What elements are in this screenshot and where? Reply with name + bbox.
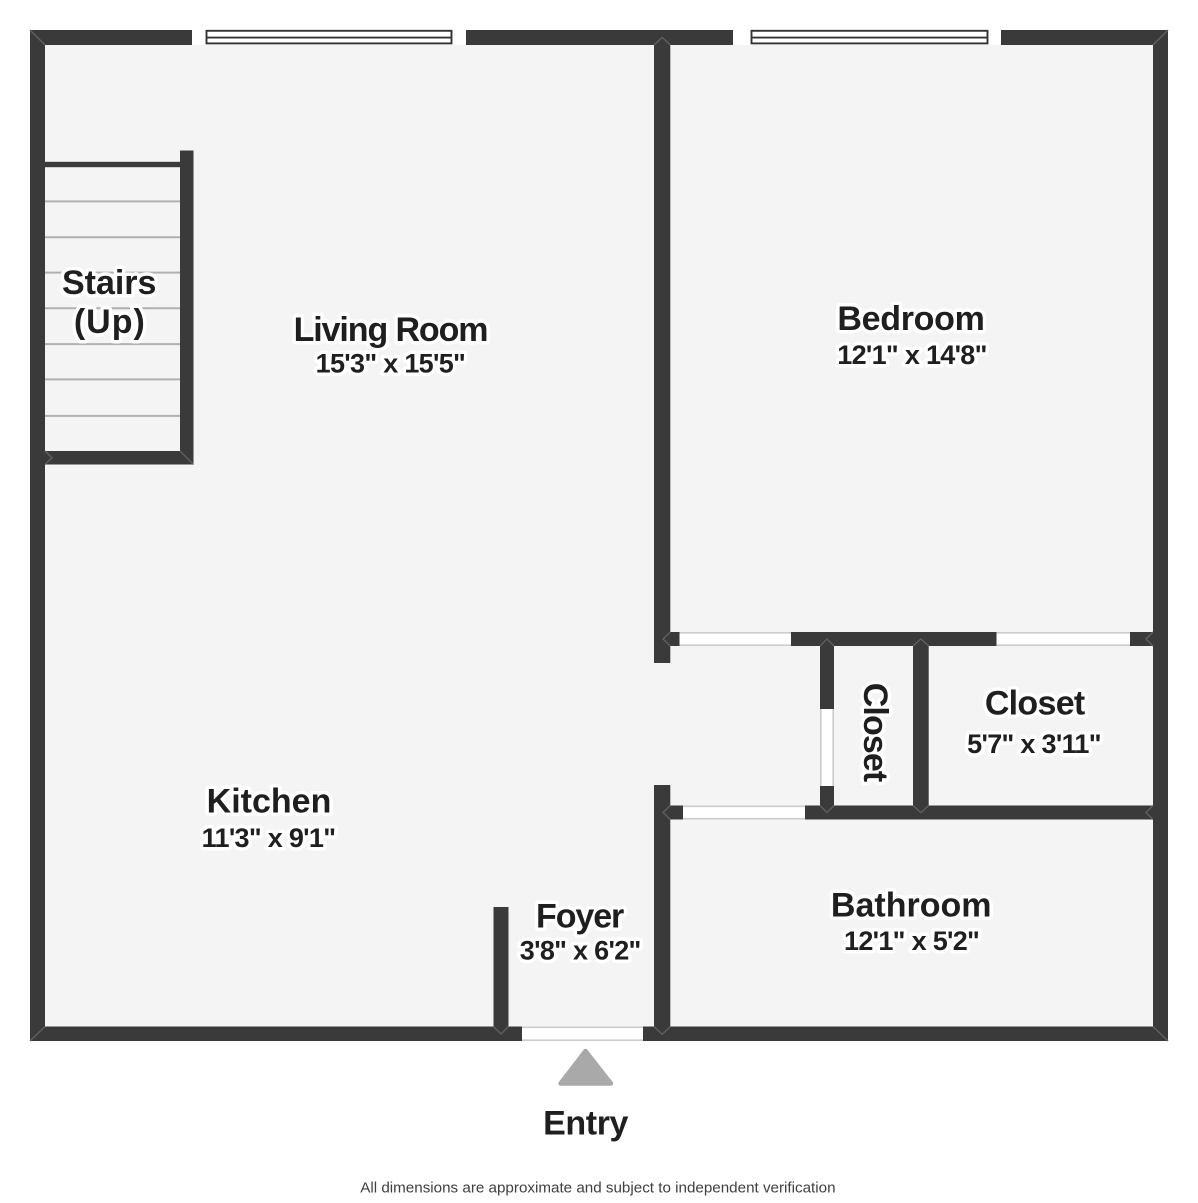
svg-text:Foyer: Foyer: [536, 897, 624, 935]
svg-text:(Up): (Up): [74, 303, 146, 341]
svg-text:5'7" x 3'11": 5'7" x 3'11": [967, 729, 1101, 759]
svg-text:All dimensions are approximate: All dimensions are approximate and subje…: [360, 1179, 835, 1196]
svg-text:Closet: Closet: [985, 685, 1085, 723]
svg-text:12'1" x 14'8": 12'1" x 14'8": [837, 340, 986, 370]
svg-text:Entry: Entry: [543, 1105, 628, 1143]
svg-text:Living Room: Living Room: [294, 311, 488, 349]
svg-text:Stairs: Stairs: [62, 264, 157, 302]
svg-text:Closet: Closet: [856, 683, 894, 782]
svg-text:12'1" x 5'2": 12'1" x 5'2": [844, 926, 979, 956]
svg-text:Bedroom: Bedroom: [837, 300, 984, 338]
svg-text:Bathroom: Bathroom: [831, 887, 992, 925]
svg-text:11'3" x 9'1": 11'3" x 9'1": [202, 823, 336, 853]
svg-text:15'3" x 15'5": 15'3" x 15'5": [316, 348, 465, 378]
svg-text:3'8" x 6'2": 3'8" x 6'2": [520, 936, 641, 966]
svg-text:Kitchen: Kitchen: [207, 783, 332, 821]
